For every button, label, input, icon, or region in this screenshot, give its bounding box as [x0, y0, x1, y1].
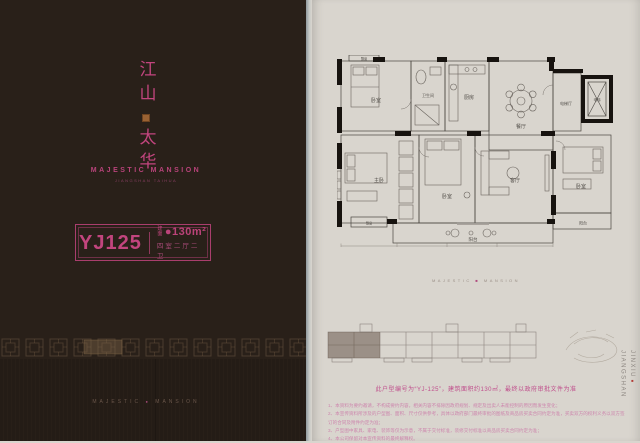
lattice-pattern-band	[0, 336, 306, 359]
unit-details: 建面 ●130m² 四室二厅二卫	[157, 226, 207, 260]
disclaimer-line: 1、本资料为要约邀请，不构成要约内容，相关内容不排除因政府规划、规定及出卖人未能…	[328, 402, 628, 410]
key-plan	[326, 318, 626, 370]
watermark-right: MANSION	[484, 278, 520, 283]
side-brand-seal-icon: ■	[630, 378, 635, 383]
side-brand-line2: JIANGSHAN	[617, 350, 627, 398]
disclaimer-line: 2、本宣传资料所涉及的户型图、面积、尺寸仅供参考，具体以政府部门最终审批的图纸及…	[328, 410, 628, 427]
floor-plan-drawing: 飘窗 卧室 卫生间 厨房 餐厅 电梯厅 电梯 主卧 卧室 客厅 卧室 阳台 阳台…	[337, 55, 613, 247]
unit-area-value: ●130m²	[165, 226, 206, 238]
unit-info-inner: YJ125 建面 ●130m² 四室二厅二卫	[78, 227, 208, 258]
unit-code: YJ125	[79, 233, 142, 253]
side-brand-jinxiu: JINXIU	[629, 350, 635, 378]
label-bathroom: 卫生间	[422, 92, 434, 98]
cover-footer-brand: MAJESTIC ● MANSION	[0, 399, 292, 405]
label-living-room: 客厅	[510, 177, 520, 184]
key-plan-highlighted-unit	[328, 332, 380, 358]
disclaimer-line: 3、户型图中家具、家电、装饰等仅为示意，不属于交付标准，装修交付标准以商品房买卖…	[328, 427, 628, 435]
plan-furniture	[337, 65, 603, 237]
label-balcony-main: 阳台	[469, 236, 478, 243]
label-master-bedroom: 主卧	[374, 177, 384, 184]
cover-title-block: 江山 太华	[0, 60, 292, 176]
cover-title-top: 江山	[138, 60, 155, 108]
label-bedroom-2: 卧室	[442, 193, 452, 200]
plan-doors	[401, 85, 565, 225]
floorplan-page: 飘窗 卧室 卫生间 厨房 餐厅 电梯厅 电梯 主卧 卧室 客厅 卧室 阳台 阳台…	[312, 0, 640, 441]
watermark-dot-icon: ■	[475, 278, 480, 283]
label-elevator-hall: 电梯厅	[560, 100, 572, 106]
unit-layout: 四室二厅二卫	[157, 240, 207, 260]
seal-ornament-icon	[142, 114, 150, 122]
unit-area-label: 建面	[157, 227, 163, 237]
unit-info-box: YJ125 建面 ●130m² 四室二厅二卫	[75, 224, 211, 261]
unit-area-line: 建面 ●130m²	[157, 226, 206, 238]
label-kitchen: 厨房	[464, 94, 474, 101]
cover-subtitle: MAJESTIC MANSION	[0, 167, 292, 174]
side-brand-text: JINXIU■ JIANGSHAN	[617, 350, 636, 398]
cover-footer-left: MAJESTIC	[92, 399, 141, 405]
label-bay-window-2: 飘窗	[366, 221, 372, 226]
watermark-left: MAJESTIC	[432, 278, 472, 283]
page-watermark: MAJESTIC ■ MANSION	[312, 278, 640, 283]
label-bay-window-1: 飘窗	[361, 56, 367, 61]
plan-caption: 此户型编号为“YJ-125”，建筑面积约130㎡，最终以政府审批文件为准	[312, 384, 640, 393]
plan-walls	[337, 57, 583, 227]
label-dining: 餐厅	[516, 123, 526, 130]
site-sketch	[566, 330, 617, 362]
brochure-cover: 江山 太华 MAJESTIC MANSION JIANGSHAN TAIHUA …	[0, 0, 306, 441]
label-bedroom-1: 卧室	[371, 97, 381, 104]
label-elevator: 电梯	[594, 97, 602, 102]
disclaimer-line: 4、本公司保留对本宣传资料的最终解释权。	[328, 435, 628, 443]
cover-subtitle-small: JIANGSHAN TAIHUA	[0, 178, 292, 183]
side-brand-line1: JINXIU■	[626, 350, 636, 398]
cover-footer-right: MANSION	[155, 399, 199, 405]
unit-divider	[149, 232, 150, 254]
disclaimer-block: 1、本资料为要约邀请，不构成要约内容，相关内容不排除因政府规划、规定及出卖人未能…	[328, 402, 628, 443]
label-bedroom-3: 卧室	[576, 183, 586, 190]
cover-footer-dot-icon: ●	[145, 399, 150, 404]
plan-dimension-line	[341, 244, 553, 248]
label-balcony-side: 阳台	[579, 220, 587, 226]
